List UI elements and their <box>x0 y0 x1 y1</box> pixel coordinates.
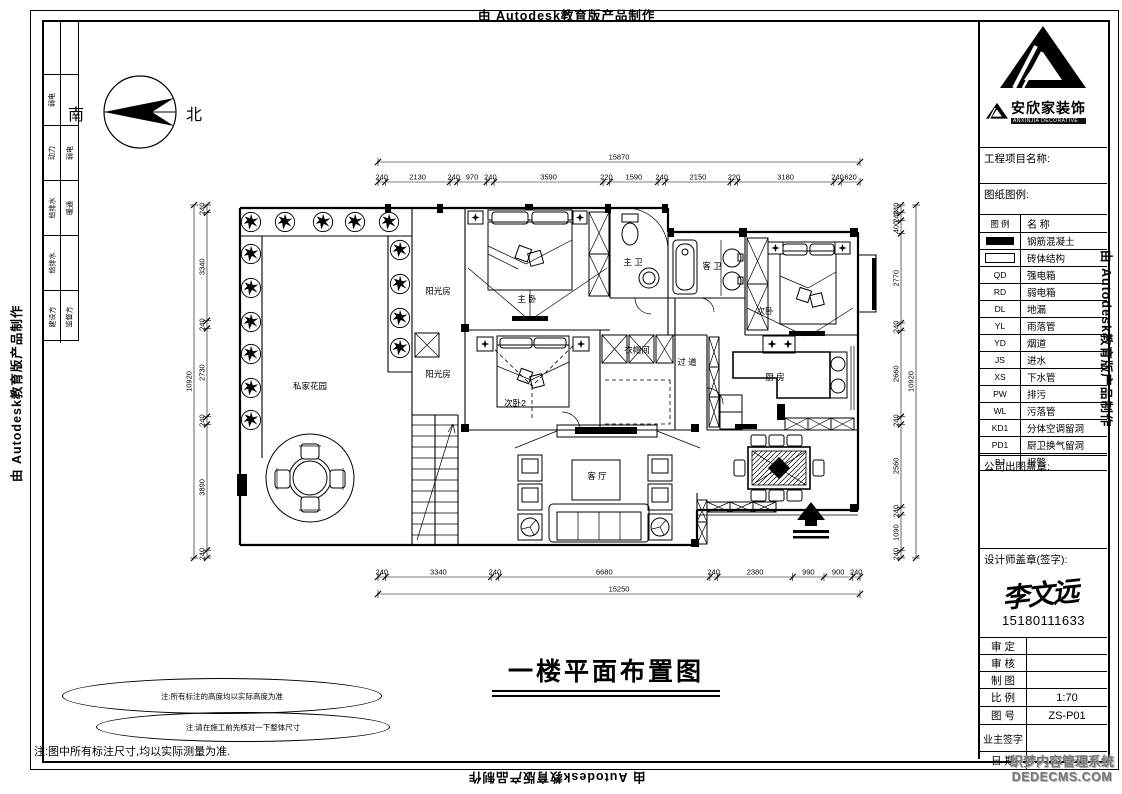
legend-row: JS进水 <box>980 352 1107 369</box>
svg-text:240: 240 <box>707 568 720 577</box>
svg-text:10920: 10920 <box>185 371 194 392</box>
svg-text:240: 240 <box>376 568 389 577</box>
note-3: 注:图中所有标注尺寸,均以实际测量为准. <box>34 743 230 759</box>
designer-seal-box: 设计师盖章(签字): 李文远 15180111633 <box>980 549 1107 638</box>
svg-text:1590: 1590 <box>626 173 643 182</box>
dim-bottom-total: 15250 <box>375 585 863 599</box>
designer-signature: 李文远 <box>1000 569 1079 616</box>
svg-text:220: 220 <box>600 173 613 182</box>
svg-text:15250: 15250 <box>609 585 630 594</box>
svg-text:2660: 2660 <box>892 365 901 382</box>
project-name-label: 工程项目名称: <box>980 148 1107 166</box>
svg-text:2380: 2380 <box>747 568 764 577</box>
legend-title-box: 图纸图例: <box>980 184 1107 215</box>
svg-text:3340: 3340 <box>430 568 447 577</box>
project-name-box: 工程项目名称: <box>980 148 1107 184</box>
signoff-cell: 建设方 <box>47 307 57 328</box>
svg-text:2770: 2770 <box>892 270 901 287</box>
svg-text:3890: 3890 <box>198 479 207 496</box>
svg-text:10920: 10920 <box>907 371 916 392</box>
signoff-cell: 监督方 <box>65 307 75 328</box>
room-label-bedroom3: 次卧2 <box>504 398 526 408</box>
info-row: 图 号ZS-P01 <box>980 707 1107 725</box>
autodesk-watermark-left: 由 Autodesk教育版产品制作 <box>6 305 25 482</box>
svg-text:220: 220 <box>728 173 741 182</box>
legend-swatch-concrete <box>986 237 1014 245</box>
svg-text:240: 240 <box>850 568 863 577</box>
svg-text:2560: 2560 <box>892 458 901 475</box>
dim-right-total: 10920 <box>907 202 921 561</box>
legend-row: PD1厨卫换气留洞 <box>980 437 1107 454</box>
legend-row: YL雨落管 <box>980 318 1107 335</box>
svg-text:990: 990 <box>802 568 815 577</box>
svg-text:620: 620 <box>844 173 857 182</box>
svg-text:240: 240 <box>892 505 901 518</box>
svg-text:400: 400 <box>892 221 901 234</box>
svg-text:3590: 3590 <box>540 173 557 182</box>
dim-bottom-segments: 240334024066802402380990900240 <box>375 568 863 582</box>
info-row: 业主签字 <box>980 725 1107 752</box>
svg-text:240: 240 <box>484 173 497 182</box>
room-label-hallway: 过 道 <box>677 357 697 367</box>
legend-row: QD强电箱 <box>980 267 1107 284</box>
legend-row: YD烟道 <box>980 335 1107 352</box>
dining-furniture <box>697 435 824 544</box>
signoff-cell: 动力 <box>47 146 57 160</box>
room-label-sunroom2: 阳光房 <box>425 369 451 379</box>
compass-north-label: 北 <box>186 101 202 125</box>
svg-text:2150: 2150 <box>690 173 707 182</box>
drawing-title: 一楼平面布置图 <box>492 652 720 697</box>
legend-row: RD弱电箱 <box>980 284 1107 301</box>
svg-text:240: 240 <box>655 173 668 182</box>
note-ellipse-1: 注:所有标注的高度均以实际高度为准 <box>62 678 382 714</box>
svg-text:6680: 6680 <box>596 568 613 577</box>
garden-table <box>266 434 354 522</box>
dim-right-segments: 2402404002770240266024025602401090240 <box>892 202 906 561</box>
company-seal-label: 公司出图盖章: <box>980 456 1107 474</box>
autodesk-watermark-top: 由 Autodesk教育版产品制作 <box>478 5 655 24</box>
bedroom2-furniture <box>747 238 853 336</box>
legend-title-label: 图纸图例: <box>980 184 1107 202</box>
svg-text:240: 240 <box>198 414 207 427</box>
info-row: 制 图 <box>980 672 1107 689</box>
dim-left-total: 10920 <box>185 202 198 561</box>
svg-text:15870: 15870 <box>609 153 630 162</box>
svg-text:2130: 2130 <box>409 173 426 182</box>
designer-seal-label: 设计师盖章(签字): <box>980 549 1107 567</box>
garden-trees <box>241 212 409 429</box>
cms-watermark-line1: 织梦内容管理系统 <box>1003 751 1121 770</box>
signoff-strip: 弱电 动力弱电 给排水暖通 给排水 建设方监督方 <box>44 22 79 341</box>
svg-text:1090: 1090 <box>892 524 901 541</box>
cms-watermark-line2: DEDECMS.COM <box>1003 770 1121 784</box>
dim-left-segments: 240334024027302403890240 <box>198 202 212 561</box>
room-label-sunroom1: 阳光房 <box>425 286 451 296</box>
dim-top-segments: 2402130240970240359022015902402150220318… <box>375 173 863 187</box>
legend-row: 砖体结构 <box>980 250 1107 267</box>
entry-arrow <box>793 502 829 539</box>
room-label-living: 客 厅 <box>587 471 607 481</box>
stairs <box>412 415 458 545</box>
signoff-cell: 暖通 <box>65 201 75 215</box>
room-labels: 私家花园 阳光房 阳光房 主 卧 主 卫 客 卫 次卧 次卧2 衣帽间 过 道 … <box>293 257 785 481</box>
scale-value: 1:70 <box>1027 692 1107 704</box>
autodesk-watermark-bottom: 由 Autodesk教育版产品制作 <box>468 769 645 788</box>
svg-text:240: 240 <box>831 173 844 182</box>
room-label-guest-bath: 客 卫 <box>702 261 722 271</box>
room-label-bedroom2: 次卧 <box>756 306 774 316</box>
svg-text:240: 240 <box>447 173 460 182</box>
svg-text:240: 240 <box>198 548 207 561</box>
compass-icon <box>96 70 184 156</box>
signoff-cell: 给排水 <box>47 198 57 219</box>
logo-section: 安欣家装饰 ANXINJIA DECORATIVE <box>980 20 1107 148</box>
legend-header-name: 名 称 <box>1021 216 1107 231</box>
svg-text:3340: 3340 <box>198 258 207 275</box>
legend-row: PW排污 <box>980 386 1107 403</box>
info-row: 比 例1:70 <box>980 689 1107 707</box>
svg-text:900: 900 <box>832 568 845 577</box>
room-label-garden: 私家花园 <box>293 381 327 391</box>
company-seal-box: 公司出图盖章: <box>980 456 1107 549</box>
legend-row: 钢筋混凝土 <box>980 233 1107 250</box>
svg-text:240: 240 <box>375 173 388 182</box>
room-label-closet: 衣帽间 <box>624 345 650 355</box>
legend-swatch-brick <box>985 253 1015 263</box>
legend-row: DL地漏 <box>980 301 1107 318</box>
svg-text:240: 240 <box>892 548 901 561</box>
signoff-cell: 弱电 <box>65 146 75 160</box>
svg-text:240: 240 <box>892 321 901 334</box>
note-ellipse-2: 注:请在施工前先核对一下整体尺寸 <box>96 712 390 742</box>
living-room-furniture <box>515 425 700 542</box>
legend-row: XS下水管 <box>980 369 1107 386</box>
svg-text:3180: 3180 <box>777 173 794 182</box>
signoff-cell: 弱电 <box>47 93 57 107</box>
info-row: 审 定 <box>980 638 1107 655</box>
room-label-master: 主 卧 <box>517 294 537 304</box>
company-name: 安欣家装饰 <box>1011 98 1086 118</box>
title-block: 安欣家装饰 ANXINJIA DECORATIVE 工程项目名称: 图纸图例: … <box>978 20 1107 759</box>
svg-text:240: 240 <box>198 318 207 331</box>
room-label-kitchen: 厨 房 <box>765 372 784 382</box>
legend-row: WL污落管 <box>980 403 1107 420</box>
legend-table: 图 例名 称 钢筋混凝土 砖体结构 QD强电箱 RD弱电箱 DL地漏 YL雨落管… <box>980 215 1107 456</box>
cms-watermark: 织梦内容管理系统 DEDECMS.COM <box>1003 751 1121 784</box>
company-logo-icon <box>1000 26 1086 90</box>
company-subtitle: ANXINJIA DECORATIVE <box>1011 118 1086 124</box>
designer-phone: 15180111633 <box>980 613 1107 628</box>
master-bedroom-furniture <box>468 210 609 321</box>
legend-header-symbol: 图 例 <box>980 215 1021 232</box>
drawing-sheet: 由 Autodesk教育版产品制作 由 Autodesk教育版产品制作 由 Au… <box>0 0 1122 794</box>
legend-row: KD1分体空调留洞 <box>980 420 1107 437</box>
svg-text:240: 240 <box>892 414 901 427</box>
svg-text:2730: 2730 <box>198 364 207 381</box>
drawing-number-value: ZS-P01 <box>1027 710 1107 722</box>
compass-south-label: 南 <box>68 101 84 125</box>
master-bath-fixtures <box>622 208 668 288</box>
info-row: 审 核 <box>980 655 1107 672</box>
kitchen-furniture <box>709 336 854 430</box>
company-logo-small-icon <box>986 102 1008 120</box>
room-label-master-bath: 主 卫 <box>623 257 643 267</box>
svg-text:240: 240 <box>198 203 207 216</box>
svg-text:240: 240 <box>489 568 502 577</box>
svg-text:970: 970 <box>466 173 479 182</box>
signoff-cell: 给排水 <box>47 253 57 274</box>
dim-top-total: 15870 <box>375 153 863 167</box>
floor-plan-svg: 私家花园 阳光房 阳光房 主 卧 主 卫 客 卫 次卧 次卧2 衣帽间 过 道 … <box>185 148 935 613</box>
